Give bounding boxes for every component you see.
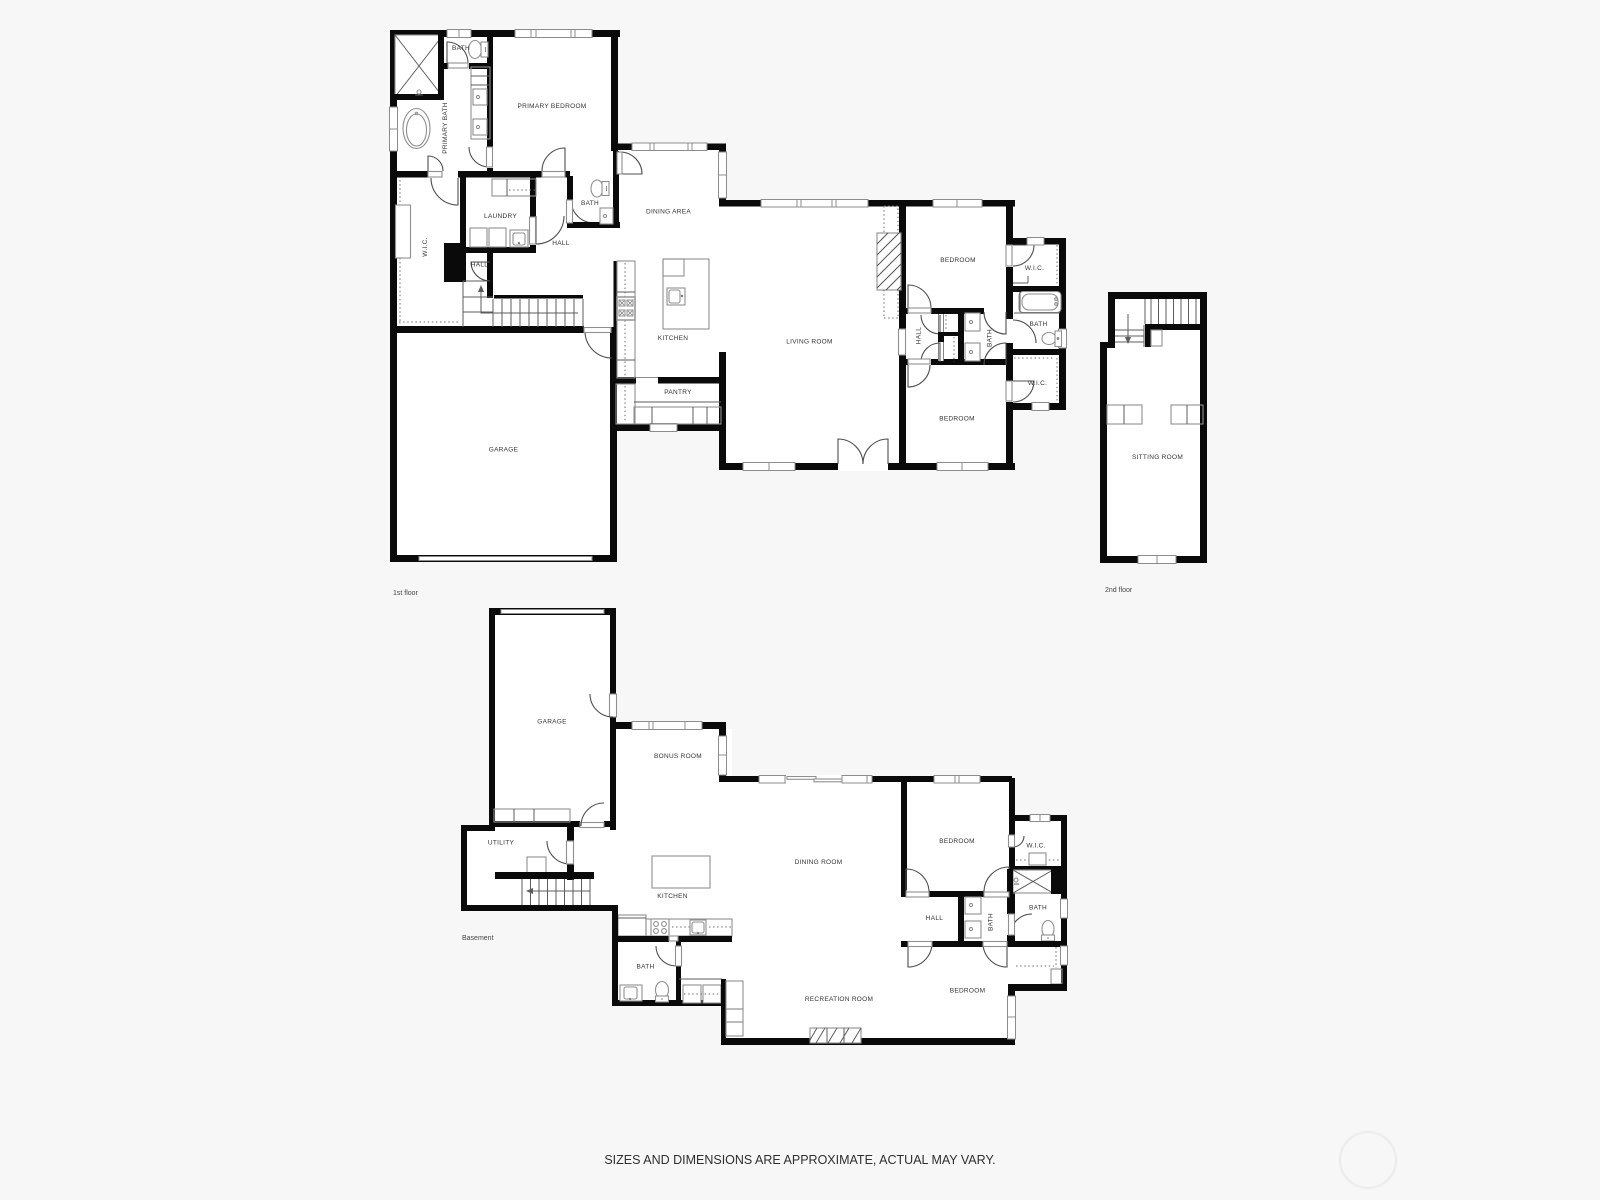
svg-text:LAUNDRY: LAUNDRY <box>484 213 517 220</box>
svg-text:DINING AREA: DINING AREA <box>646 209 691 216</box>
svg-text:W.I.C.: W.I.C. <box>1028 380 1047 387</box>
svg-text:2nd floor: 2nd floor <box>1105 587 1133 594</box>
svg-text:LIVING ROOM: LIVING ROOM <box>786 339 832 346</box>
svg-text:BEDROOM: BEDROOM <box>939 838 975 845</box>
svg-text:HALL: HALL <box>552 240 569 247</box>
svg-text:PRIMARY BEDROOM: PRIMARY BEDROOM <box>518 103 587 110</box>
svg-text:PRIMARY BATH: PRIMARY BATH <box>442 102 449 153</box>
svg-text:HALL: HALL <box>471 262 488 269</box>
svg-text:W.I.C.: W.I.C. <box>1026 843 1045 850</box>
svg-text:SITTING ROOM: SITTING ROOM <box>1132 454 1183 461</box>
svg-text:BONUS ROOM: BONUS ROOM <box>654 753 702 760</box>
svg-text:BATH: BATH <box>452 45 470 52</box>
svg-text:Basement: Basement <box>462 935 494 942</box>
svg-text:UTILITY: UTILITY <box>488 840 515 847</box>
svg-text:BATH: BATH <box>988 913 995 931</box>
svg-text:BATH: BATH <box>987 329 994 347</box>
svg-text:HALL: HALL <box>916 327 923 344</box>
svg-text:BEDROOM: BEDROOM <box>940 257 976 264</box>
svg-text:PANTRY: PANTRY <box>664 389 692 396</box>
svg-text:W.I.C.: W.I.C. <box>1025 265 1044 272</box>
svg-text:GARAGE: GARAGE <box>537 719 567 726</box>
svg-text:HALL: HALL <box>926 915 943 922</box>
svg-text:SIZES AND DIMENSIONS ARE APPRO: SIZES AND DIMENSIONS ARE APPROXIMATE, AC… <box>604 1153 995 1167</box>
svg-text:RECREATION ROOM: RECREATION ROOM <box>805 996 873 1003</box>
svg-text:BEDROOM: BEDROOM <box>950 988 986 995</box>
svg-text:BATH: BATH <box>637 964 655 971</box>
svg-text:DINING ROOM: DINING ROOM <box>795 859 843 866</box>
svg-text:W.I.C.: W.I.C. <box>422 237 429 256</box>
svg-text:KITCHEN: KITCHEN <box>658 335 689 342</box>
svg-text:GARAGE: GARAGE <box>489 447 519 454</box>
svg-text:BATH: BATH <box>581 200 599 207</box>
svg-text:1st floor: 1st floor <box>393 590 419 597</box>
svg-text:BEDROOM: BEDROOM <box>939 416 975 423</box>
svg-text:BATH: BATH <box>1030 321 1048 328</box>
svg-text:KITCHEN: KITCHEN <box>657 893 688 900</box>
svg-text:BATH: BATH <box>1029 905 1047 912</box>
